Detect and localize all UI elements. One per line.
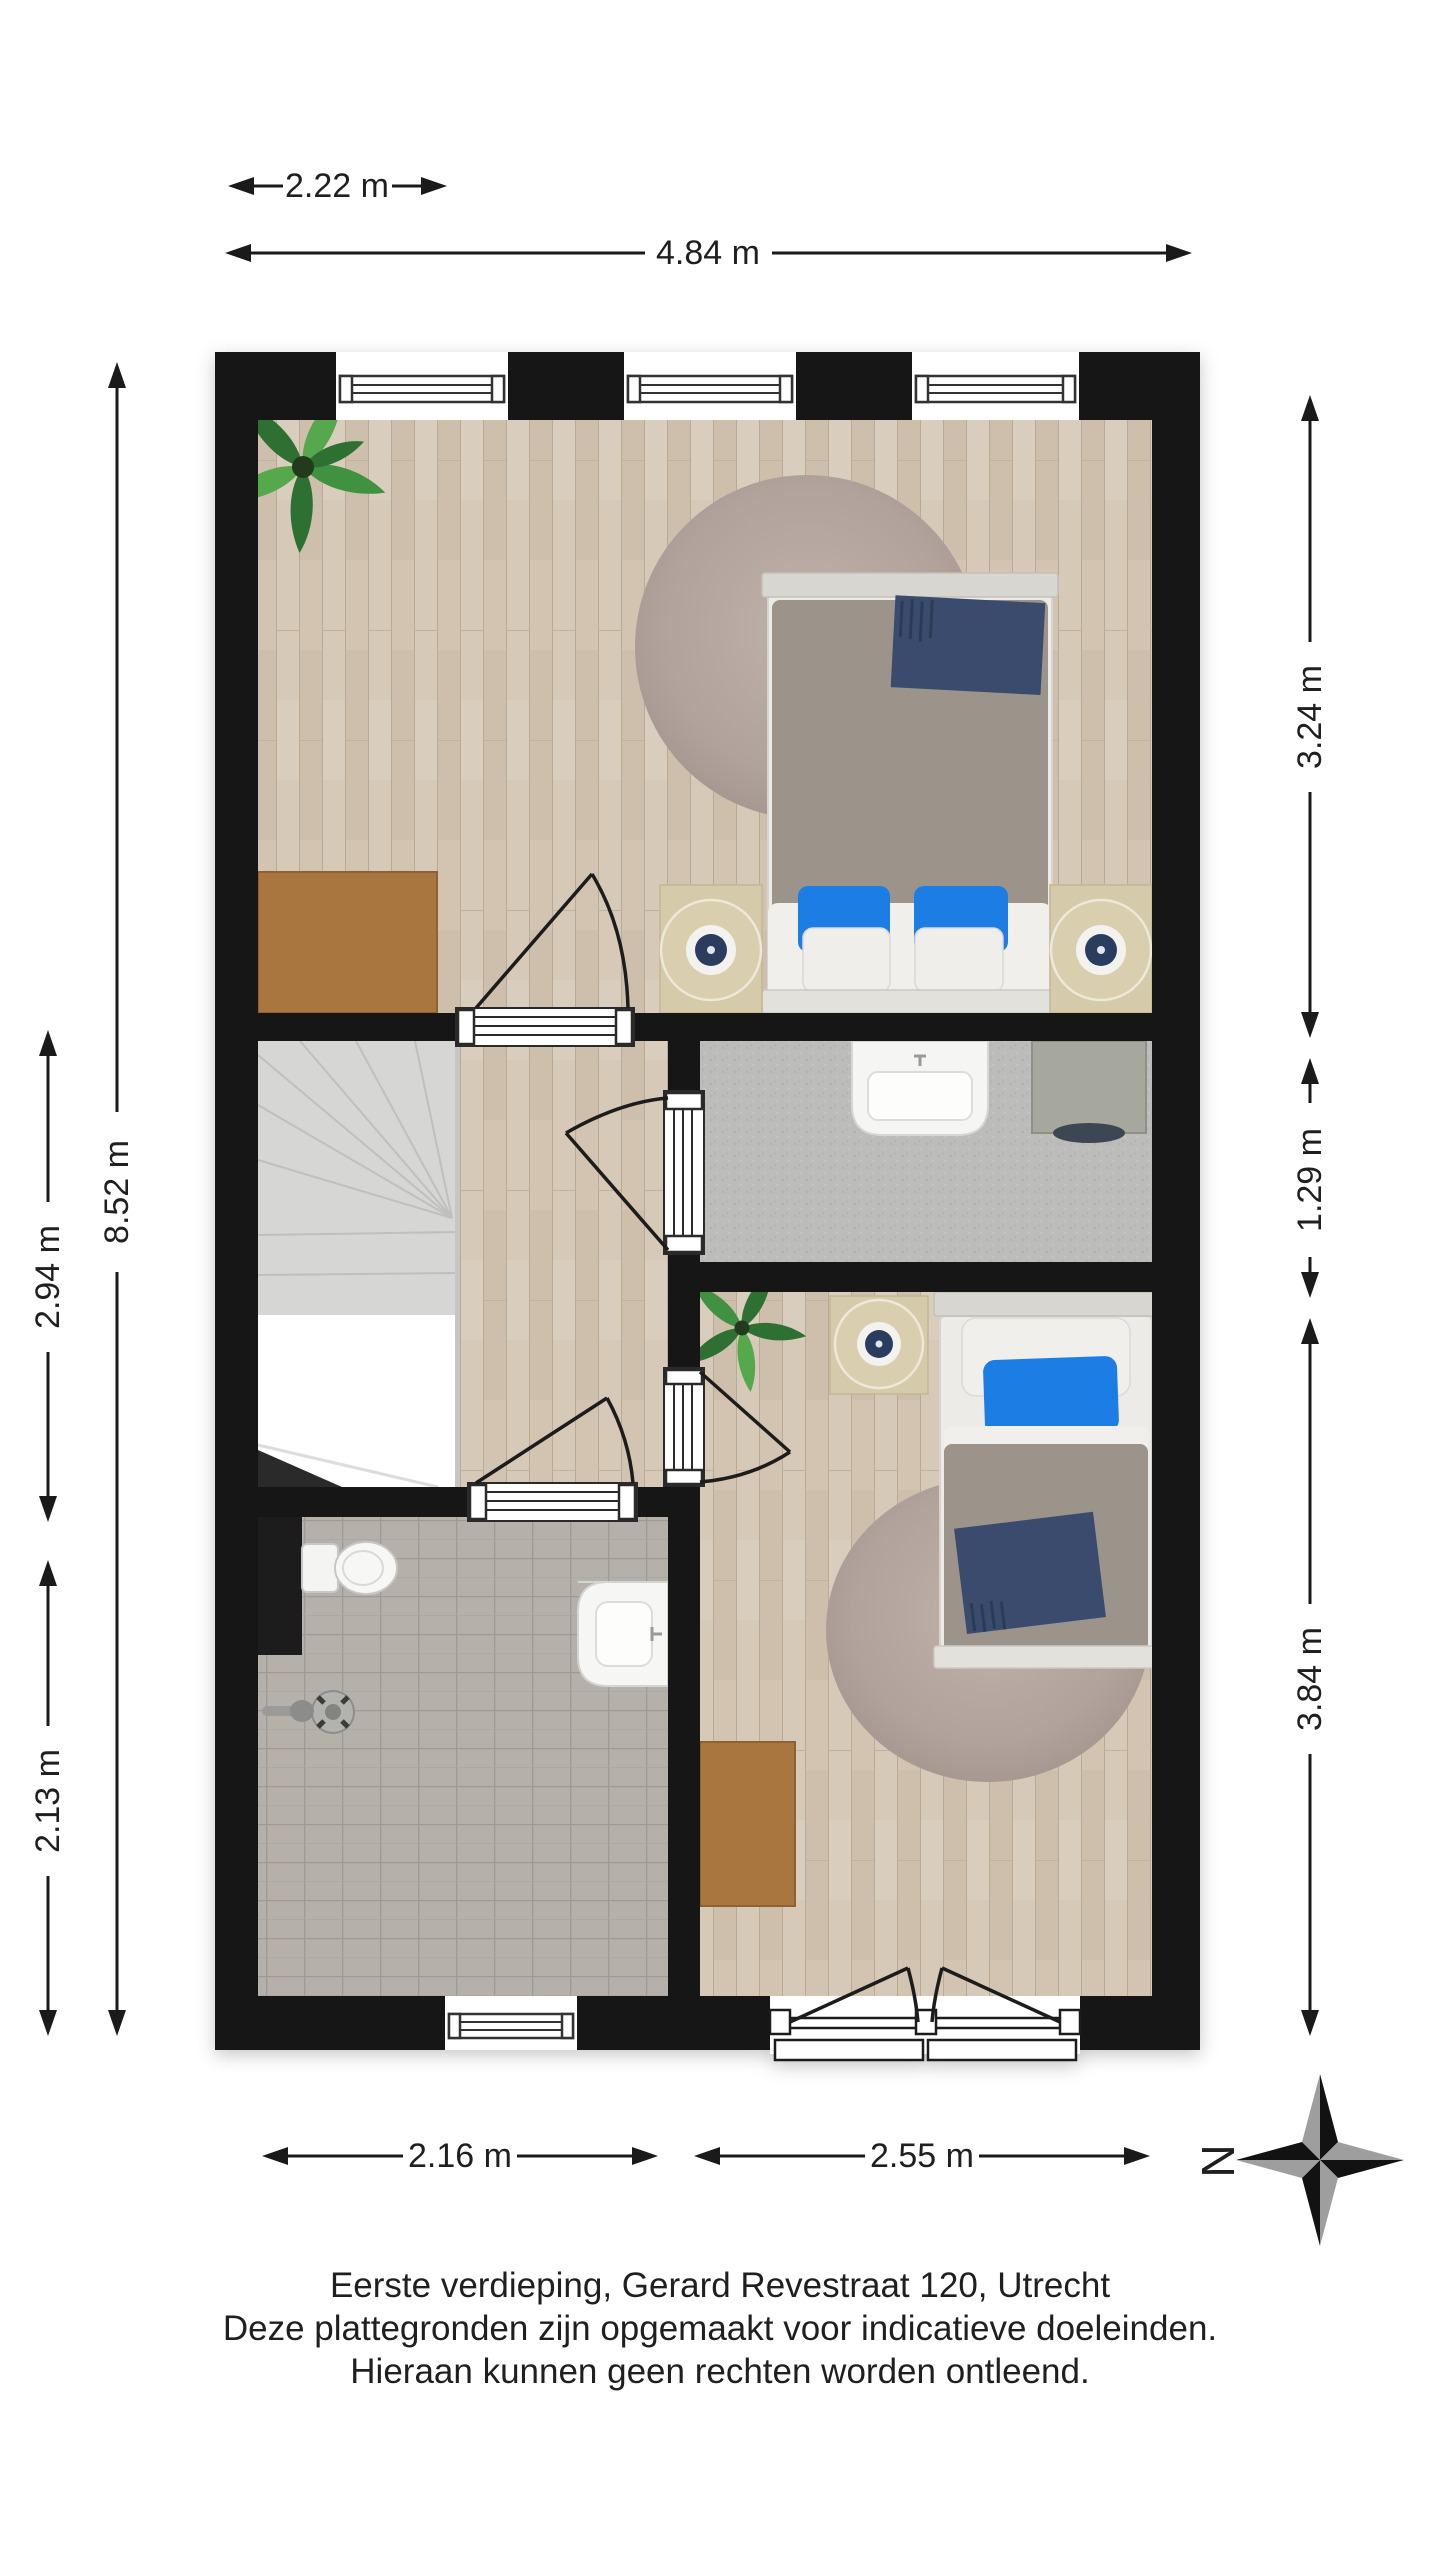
pillow-white — [915, 928, 1003, 992]
caption-line-3: Hieraan kunnen geen rechten worden ontle… — [350, 2352, 1089, 2391]
single-bed — [934, 1292, 1158, 1668]
dimension-label: 2.55 m — [870, 2137, 974, 2175]
floor-plan-figure: 2.22 m 4.84 m 8.52 m 2.94 m 2.13 — [0, 0, 1440, 2560]
navy-throw — [891, 595, 1046, 695]
dimension-label: 2.16 m — [408, 2137, 512, 2175]
washing-machine — [1032, 1041, 1146, 1143]
wall-left — [215, 352, 258, 2050]
double-bed — [762, 573, 1058, 1013]
dimension-right-2: 1.29 m — [1291, 1058, 1329, 1298]
nightstand — [830, 1296, 928, 1394]
dimension-left-1: 8.52 m — [98, 362, 136, 2036]
dimension-left-3: 2.13 m — [29, 1560, 67, 2036]
dimension-bottom-2: 2.55 m — [694, 2137, 1150, 2175]
footboard — [762, 573, 1058, 597]
dimension-label: 4.84 m — [656, 234, 760, 272]
dimension-label: 2.94 m — [29, 1225, 67, 1329]
window — [336, 352, 508, 420]
footboard — [934, 1646, 1158, 1668]
stair-divider — [455, 1041, 460, 1487]
dimension-label: 2.13 m — [29, 1749, 67, 1853]
stair-void — [258, 1315, 455, 1487]
navy-throw — [954, 1512, 1106, 1634]
headboard — [762, 990, 1058, 1013]
hall-floor — [458, 1041, 668, 1487]
dimension-right-1: 3.24 m — [1291, 395, 1329, 1038]
dimension-label: 2.22 m — [285, 167, 389, 205]
caption-line-1: Eerste verdieping, Gerard Revestraat 120… — [330, 2266, 1110, 2305]
caption: Eerste verdieping, Gerard Revestraat 120… — [223, 2266, 1217, 2391]
floor-plan — [215, 352, 1200, 2060]
washbasin-unit — [852, 1041, 988, 1135]
shaft — [258, 1517, 302, 1655]
caption-line-2: Deze plattegronden zijn opgemaakt voor i… — [223, 2309, 1217, 2348]
nightstand-right — [1050, 885, 1152, 1013]
wall-right — [1152, 352, 1200, 2050]
dimension-label: 3.24 m — [1291, 665, 1329, 769]
pillow-white — [803, 928, 890, 992]
dimension-label: 3.84 m — [1291, 1627, 1329, 1731]
compass-north-label: N — [1192, 2144, 1244, 2177]
desk — [258, 872, 437, 1013]
dimension-top-1: 2.22 m — [228, 167, 447, 205]
bathroom-window — [445, 1996, 577, 2050]
desk — [700, 1742, 795, 1906]
dimension-right-3: 3.84 m — [1291, 1318, 1329, 2036]
pillow-blue — [983, 1356, 1120, 1437]
dimension-left-2: 2.94 m — [29, 1030, 67, 1522]
toilet — [302, 1542, 397, 1594]
compass-rose: N — [1192, 2074, 1404, 2246]
dimension-top-2: 4.84 m — [225, 234, 1192, 272]
nightstand-left — [660, 885, 762, 1013]
window — [912, 352, 1079, 420]
dimension-label: 1.29 m — [1291, 1128, 1329, 1232]
washbasin — [578, 1582, 668, 1686]
headboard — [934, 1292, 1158, 1316]
dimension-label: 8.52 m — [98, 1140, 136, 1244]
dimension-bottom-1: 2.16 m — [262, 2137, 658, 2175]
staircase — [258, 1041, 460, 1487]
floorplan-page: 2.22 m 4.84 m 8.52 m 2.94 m 2.13 — [0, 0, 1440, 2560]
window — [624, 352, 796, 420]
